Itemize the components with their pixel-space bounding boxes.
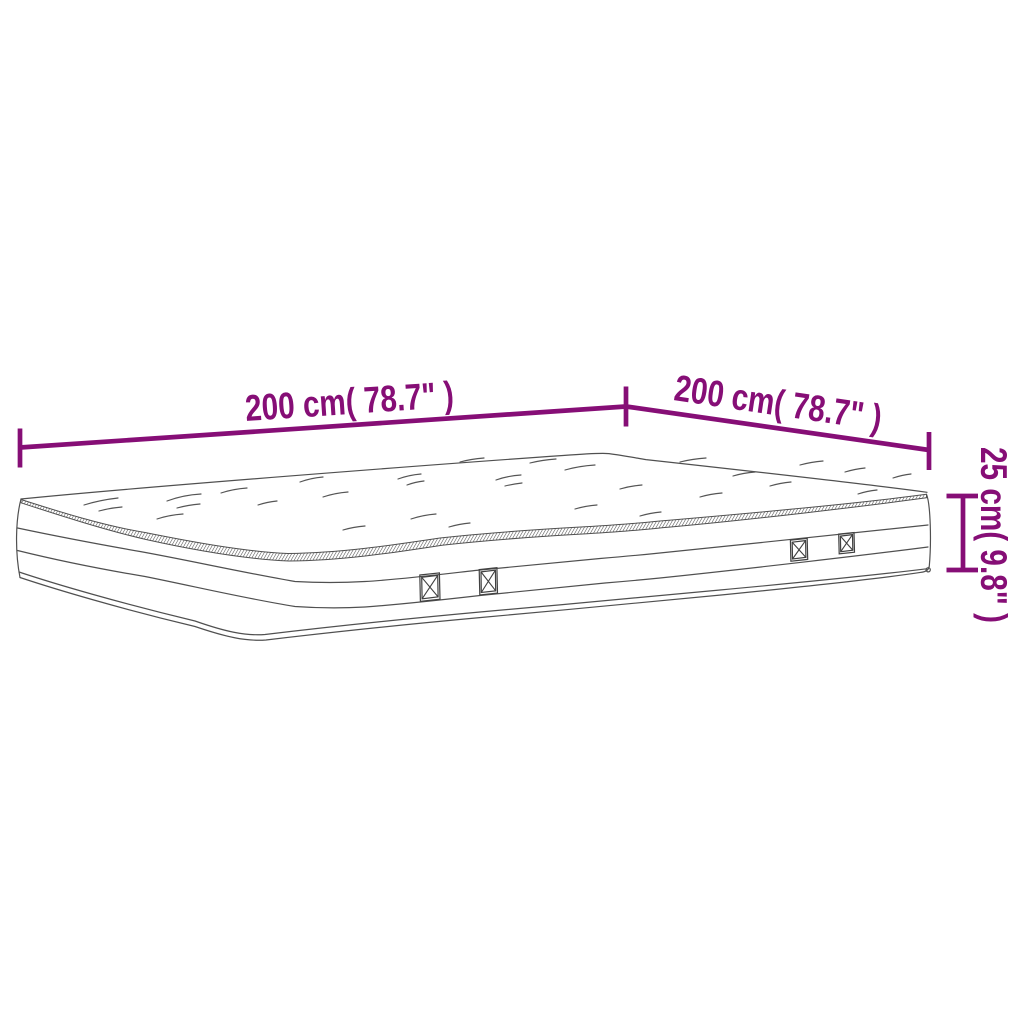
svg-text:25 cm( 9.8" ): 25 cm( 9.8" ) [973,447,1014,623]
